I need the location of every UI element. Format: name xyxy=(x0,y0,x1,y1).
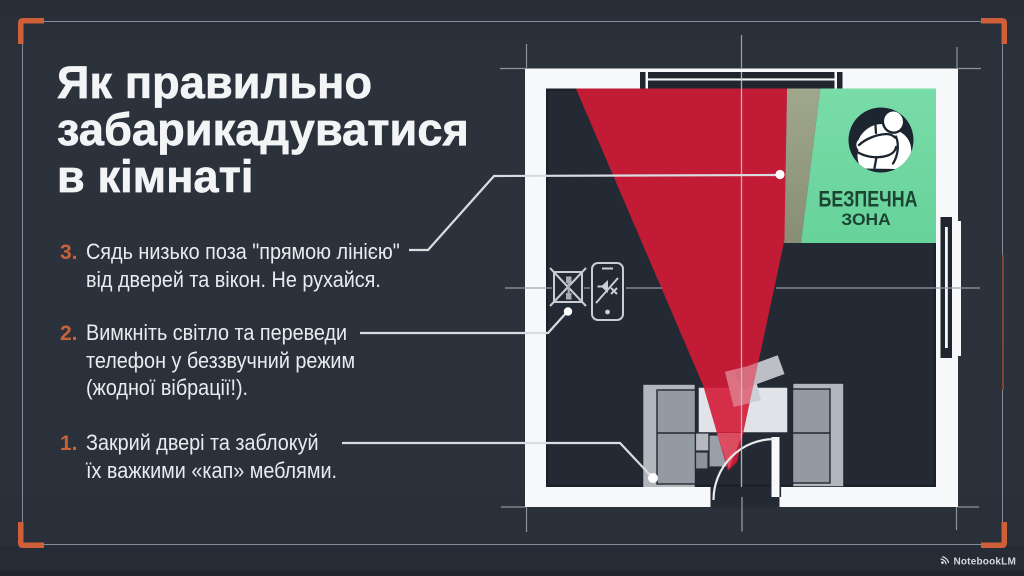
svg-text:ЗОНА: ЗОНА xyxy=(841,210,891,229)
svg-text:БЕЗПЕЧНА: БЕЗПЕЧНА xyxy=(819,187,918,212)
